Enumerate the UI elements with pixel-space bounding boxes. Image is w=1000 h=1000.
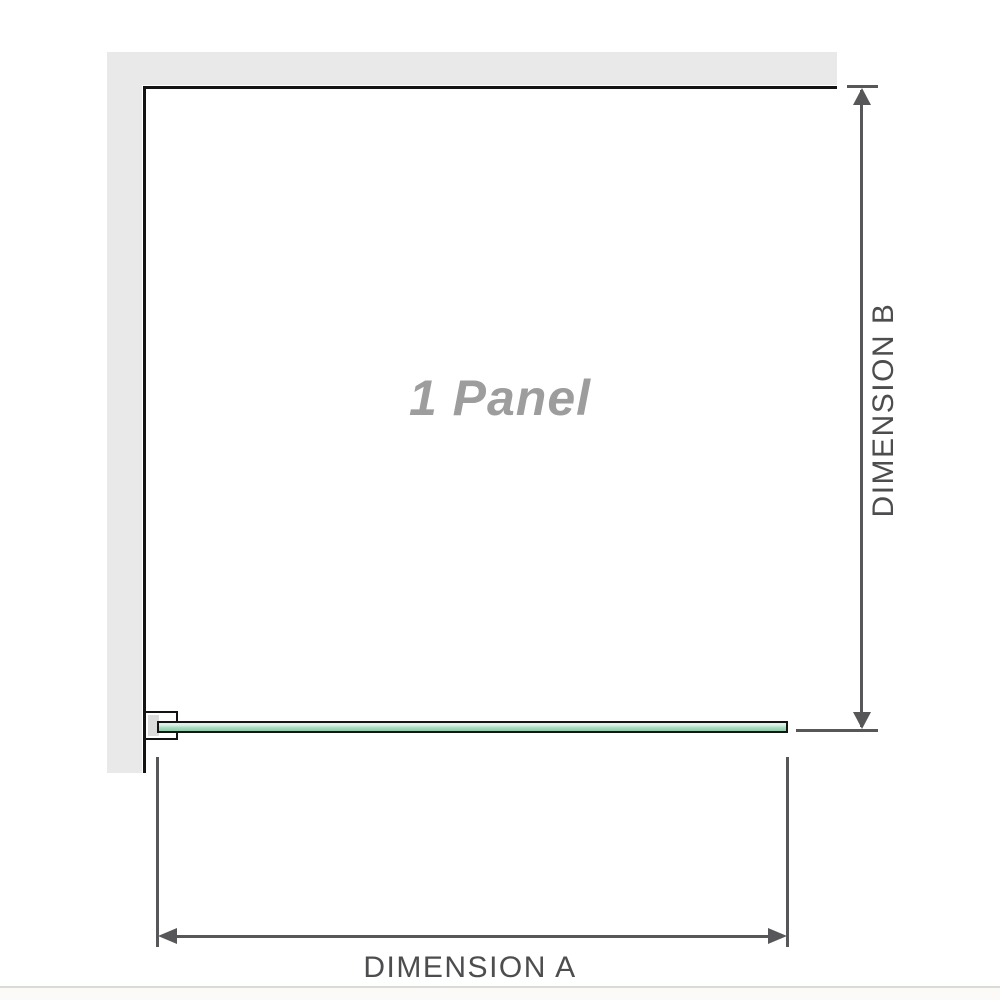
page-footer-area <box>0 988 1000 1000</box>
dimension-a-line <box>174 935 770 938</box>
dimension-a-arrow-right-icon <box>768 928 787 944</box>
dimension-a-right-extension-line <box>786 757 789 947</box>
dimension-b-label: DIMENSION B <box>868 260 900 560</box>
glass-panel-bar <box>157 721 788 733</box>
dimension-b-line <box>860 90 863 727</box>
dimension-b-bottom-tick <box>796 729 878 732</box>
dimension-b-arrow-up-icon <box>853 88 871 105</box>
dimension-a-label: DIMENSION A <box>270 950 670 986</box>
panel-frame-left-border <box>143 86 146 773</box>
panel-dimension-diagram: 1 Panel DIMENSION B DIMENSION A <box>0 0 1000 1000</box>
panel-count-label: 1 Panel <box>300 368 700 428</box>
wall-top-strip <box>107 52 837 85</box>
dimension-a-arrow-left-icon <box>158 928 177 944</box>
dimension-b-arrow-down-icon <box>853 712 871 729</box>
panel-frame-top-border <box>143 86 837 89</box>
dimension-a-left-extension-line <box>156 757 159 947</box>
wall-left-strip <box>107 52 142 773</box>
